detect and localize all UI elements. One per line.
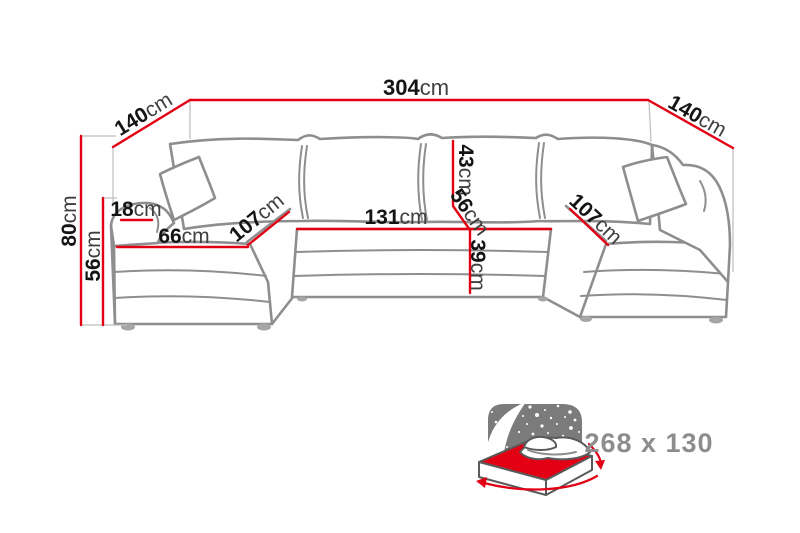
right-chaise-connector: [543, 297, 580, 317]
sleeping-function-icon: 268 x 130: [476, 402, 714, 495]
dimension-left-seat-height: 56cm: [82, 198, 105, 325]
length-arrowhead: [595, 460, 605, 470]
dimension-left-armrest-width: 18cm: [110, 198, 161, 221]
left-chaise-connector: [272, 297, 293, 324]
sofa-leg: [580, 316, 592, 322]
dim-label-right-arm-depth: 140cm: [664, 91, 730, 142]
dim-label-total-height: 80cm: [58, 195, 81, 246]
diagram-canvas: 304cm 140cm 140cm 80cm 56cm 18cm 66cm 10…: [0, 0, 800, 533]
dim-label-left-chaise-width: 66cm: [158, 225, 209, 248]
left-chaise: [114, 242, 272, 324]
sofa-leg: [538, 297, 548, 302]
sofa-leg: [297, 297, 307, 302]
sofa-dimension-diagram: 304cm 140cm 140cm 80cm 56cm 18cm 66cm 10…: [0, 0, 800, 533]
dimension-total-width: 304cm: [190, 75, 648, 100]
sofa-leg: [709, 317, 723, 324]
guide-line: [649, 101, 651, 142]
dimension-left-arm-depth: 140cm: [111, 88, 190, 147]
sleeping-size-label: 268 x 130: [584, 428, 713, 458]
dim-label-left-armrest-width: 18cm: [110, 198, 161, 221]
sofa-leg: [257, 324, 271, 331]
dimension-total-height: 80cm: [58, 136, 81, 325]
dim-label-total-width: 304cm: [383, 75, 449, 100]
dimension-right-arm-depth: 140cm: [648, 91, 733, 148]
dim-label-left-seat-height: 56cm: [82, 230, 105, 281]
center-seat-front: [292, 229, 551, 297]
dim-label-center-seat-width: 131cm: [364, 206, 427, 229]
dim-label-center-seat-height: 39cm: [466, 239, 489, 290]
